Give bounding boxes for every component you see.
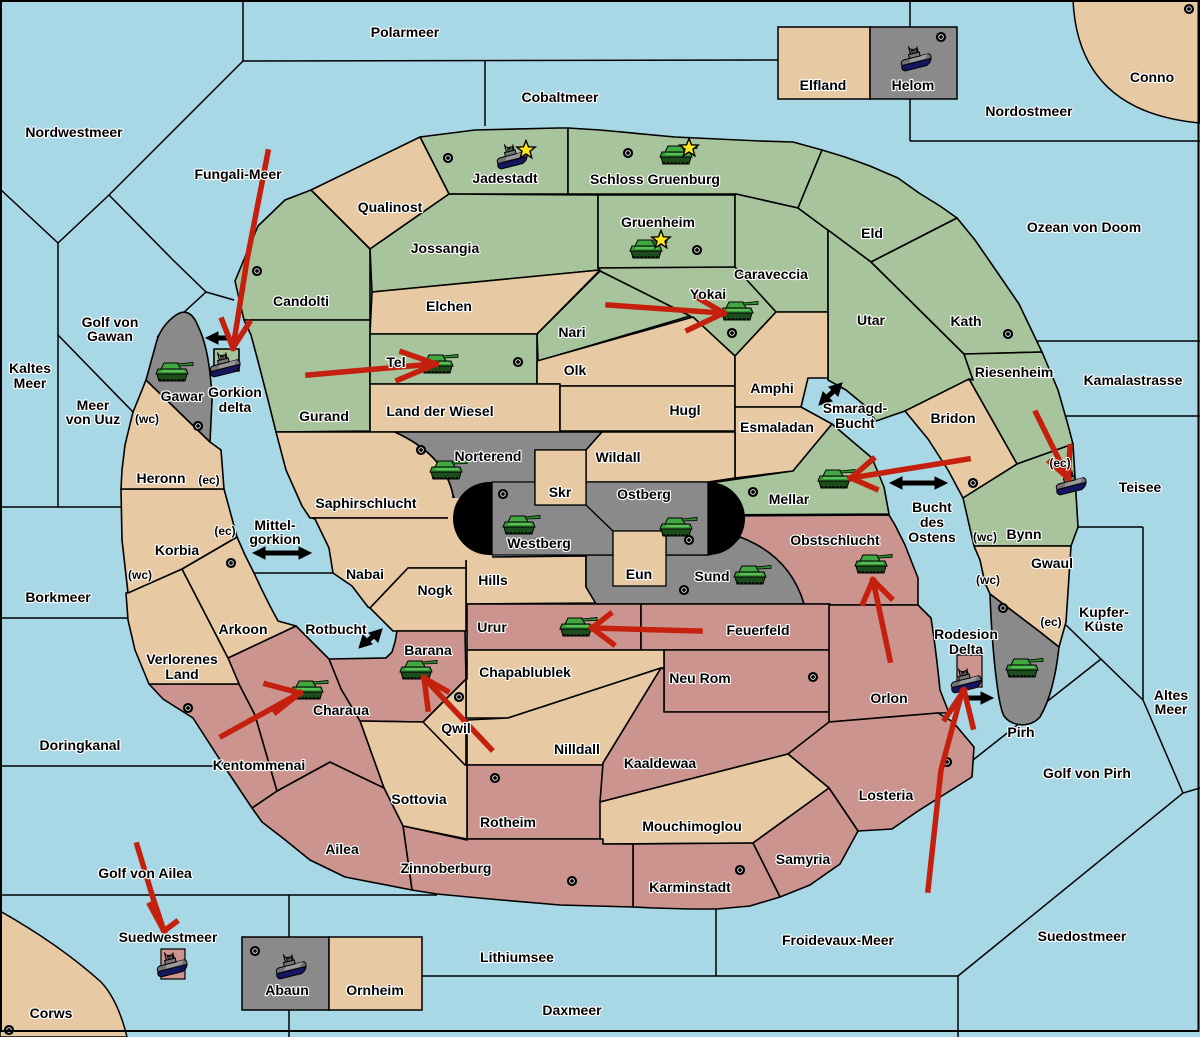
svg-text:Elchen: Elchen	[426, 298, 472, 314]
svg-text:(wc): (wc)	[973, 530, 997, 544]
svg-text:Meer: Meer	[14, 375, 47, 391]
svg-text:Yokai: Yokai	[690, 286, 726, 302]
svg-text:Froidevaux-Meer: Froidevaux-Meer	[782, 932, 895, 948]
svg-text:Candolti: Candolti	[273, 293, 329, 309]
svg-text:Ostberg: Ostberg	[617, 486, 671, 502]
svg-text:Ozean von Doom: Ozean von Doom	[1027, 219, 1141, 235]
svg-text:Suedostmeer: Suedostmeer	[1038, 928, 1127, 944]
svg-text:Kamalastrasse: Kamalastrasse	[1084, 372, 1183, 388]
svg-text:Nogk: Nogk	[418, 582, 453, 598]
svg-text:Ostens: Ostens	[908, 529, 956, 545]
svg-text:Caraveccia: Caraveccia	[734, 266, 808, 282]
svg-text:Esmaladan: Esmaladan	[740, 419, 814, 435]
svg-text:gorkion: gorkion	[249, 531, 300, 547]
svg-text:(wc): (wc)	[976, 573, 1000, 587]
svg-text:Neu Rom: Neu Rom	[669, 670, 730, 686]
svg-text:Arkoon: Arkoon	[219, 621, 268, 637]
svg-text:Golf von Pirh: Golf von Pirh	[1043, 765, 1131, 781]
svg-text:Amphi: Amphi	[750, 380, 794, 396]
svg-text:Skr: Skr	[549, 484, 572, 500]
svg-text:Teisee: Teisee	[1119, 479, 1162, 495]
svg-text:Hills: Hills	[478, 572, 508, 588]
svg-text:Eun: Eun	[626, 566, 652, 582]
svg-text:(ec): (ec)	[1040, 615, 1061, 629]
svg-text:Gruenheim: Gruenheim	[621, 214, 695, 230]
svg-text:Urur: Urur	[477, 619, 507, 635]
svg-text:Küste: Küste	[1085, 618, 1124, 634]
svg-text:Heronn: Heronn	[137, 470, 186, 486]
svg-text:Gorkion: Gorkion	[208, 384, 262, 400]
svg-text:(ec): (ec)	[1049, 456, 1070, 470]
svg-text:(wc): (wc)	[135, 412, 159, 426]
svg-text:Abaun: Abaun	[265, 982, 309, 998]
svg-text:Bridon: Bridon	[930, 410, 975, 426]
svg-text:Suedwestmeer: Suedwestmeer	[119, 929, 218, 945]
svg-text:Wildall: Wildall	[596, 449, 641, 465]
svg-text:Nordostmeer: Nordostmeer	[985, 103, 1073, 119]
svg-text:Karminstadt: Karminstadt	[649, 879, 731, 895]
svg-text:Conno: Conno	[1130, 69, 1174, 85]
svg-text:Chapablublek: Chapablublek	[479, 664, 571, 680]
svg-text:Nabai: Nabai	[346, 566, 384, 582]
svg-text:Delta: Delta	[949, 641, 983, 657]
svg-text:Rotheim: Rotheim	[480, 814, 536, 830]
svg-text:Pirh: Pirh	[1007, 724, 1034, 740]
svg-text:Rodesion: Rodesion	[934, 626, 998, 642]
svg-text:Jossangia: Jossangia	[411, 240, 480, 256]
svg-text:Utar: Utar	[857, 312, 886, 328]
svg-text:Tel: Tel	[386, 354, 405, 370]
svg-text:Korbia: Korbia	[155, 542, 200, 558]
svg-text:Zinnoberburg: Zinnoberburg	[401, 860, 492, 876]
svg-text:Barana: Barana	[404, 642, 452, 658]
svg-text:Corws: Corws	[30, 1005, 73, 1021]
svg-text:Cobaltmeer: Cobaltmeer	[521, 89, 599, 105]
svg-text:Kaltes: Kaltes	[9, 360, 51, 376]
svg-text:Smaragd-: Smaragd-	[823, 400, 888, 416]
svg-text:(ec): (ec)	[198, 473, 219, 487]
svg-text:Qwil: Qwil	[441, 720, 471, 736]
svg-text:Helom: Helom	[892, 77, 935, 93]
svg-text:Mellar: Mellar	[769, 491, 810, 507]
svg-text:Kaaldewaa: Kaaldewaa	[624, 755, 697, 771]
svg-text:Kentommenai: Kentommenai	[213, 757, 306, 773]
svg-text:Verlorenes: Verlorenes	[146, 651, 218, 667]
svg-text:Saphirschlucht: Saphirschlucht	[315, 495, 416, 511]
svg-text:Bynn: Bynn	[1007, 526, 1042, 542]
svg-text:Bucht: Bucht	[835, 415, 875, 431]
svg-text:Obstschlucht: Obstschlucht	[790, 532, 880, 548]
svg-text:Sund: Sund	[695, 568, 730, 584]
svg-text:Hugl: Hugl	[669, 402, 700, 418]
svg-text:Polarmeer: Polarmeer	[371, 24, 440, 40]
svg-text:Land der Wiesel: Land der Wiesel	[386, 403, 493, 419]
svg-text:(ec): (ec)	[214, 524, 235, 538]
svg-text:Bucht: Bucht	[912, 499, 952, 515]
svg-text:des: des	[920, 514, 944, 530]
svg-text:Gurand: Gurand	[299, 408, 349, 424]
svg-text:Schloss Gruenburg: Schloss Gruenburg	[590, 171, 720, 187]
svg-text:Norterend: Norterend	[455, 448, 522, 464]
svg-text:Rotbucht: Rotbucht	[305, 621, 367, 637]
svg-text:Riesenheim: Riesenheim	[975, 364, 1054, 380]
svg-text:Westberg: Westberg	[507, 535, 571, 551]
svg-text:delta: delta	[219, 399, 252, 415]
svg-text:Doringkanal: Doringkanal	[40, 737, 121, 753]
svg-text:Samyria: Samyria	[776, 851, 831, 867]
svg-text:(wc): (wc)	[128, 568, 152, 582]
svg-text:Lithiumsee: Lithiumsee	[480, 949, 554, 965]
svg-text:Feuerfeld: Feuerfeld	[726, 622, 789, 638]
svg-text:Nilldall: Nilldall	[554, 741, 600, 757]
svg-text:Daxmeer: Daxmeer	[542, 1002, 602, 1018]
svg-text:Land: Land	[165, 666, 198, 682]
svg-text:Gawan: Gawan	[87, 328, 133, 344]
svg-text:von Uuz: von Uuz	[66, 411, 120, 427]
svg-text:Mouchimoglou: Mouchimoglou	[642, 818, 742, 834]
svg-text:Jadestadt: Jadestadt	[472, 170, 538, 186]
svg-text:Orlon: Orlon	[870, 690, 907, 706]
svg-text:Eld: Eld	[861, 225, 883, 241]
svg-text:Ailea: Ailea	[325, 841, 359, 857]
svg-text:Golf von Ailea: Golf von Ailea	[98, 865, 192, 881]
svg-text:Elfland: Elfland	[800, 77, 847, 93]
svg-text:Gawar: Gawar	[161, 388, 204, 404]
svg-text:Ornheim: Ornheim	[346, 982, 404, 998]
svg-text:Nari: Nari	[558, 324, 585, 340]
svg-text:Nordwestmeer: Nordwestmeer	[25, 124, 123, 140]
svg-text:Borkmeer: Borkmeer	[25, 589, 91, 605]
svg-text:Qualinost: Qualinost	[358, 199, 423, 215]
svg-text:Olk: Olk	[564, 362, 587, 378]
svg-text:Gwaul: Gwaul	[1031, 555, 1073, 571]
svg-text:Kath: Kath	[950, 313, 981, 329]
svg-text:Sottovia: Sottovia	[391, 791, 446, 807]
svg-text:Fungali-Meer: Fungali-Meer	[194, 166, 282, 182]
svg-text:Charaua: Charaua	[313, 702, 369, 718]
svg-text:Losteria: Losteria	[859, 787, 914, 803]
svg-text:Meer: Meer	[1155, 701, 1188, 717]
